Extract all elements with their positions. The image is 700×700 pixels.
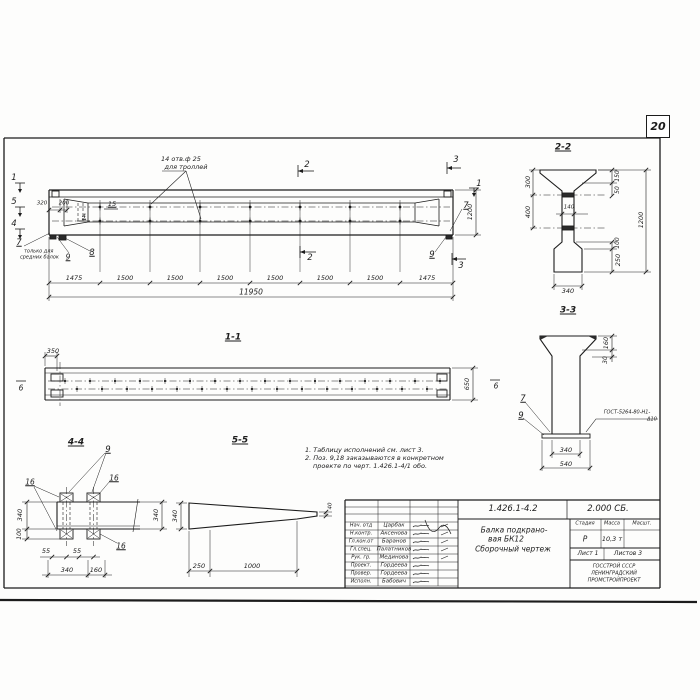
main-view-dim-320: 320 xyxy=(37,201,48,207)
section-2-2-dim-150: 150 xyxy=(615,170,621,181)
title-block-rows-7-role: Исполн. xyxy=(351,580,372,585)
main-view-mark-1: 1 xyxy=(476,180,481,189)
title-block-sheets-info: Листов 3 xyxy=(614,551,642,557)
notes-line1: 1. Таблицу исполнений см. лист 3. xyxy=(305,447,424,454)
main-view-pos-7: 7 xyxy=(16,239,21,248)
main-view-dims-bottom-5: 1500 xyxy=(317,275,334,282)
main-view-dims-bottom-0: 1475 xyxy=(66,275,83,282)
section-3-3-pos-9: 9 xyxy=(518,412,523,421)
title-block-rows-1-name: Аксенова xyxy=(380,531,407,537)
main-view-pos-9: 9 xyxy=(429,251,434,260)
section-4-4-pos-16: 16 xyxy=(109,474,119,482)
annotation-layer: 14 отв.ф 25для троллей154122333202001547… xyxy=(0,0,700,700)
section-2-2-dim-1200: 1200 xyxy=(638,212,645,229)
title-block-rows-2-name: Баранов xyxy=(382,539,406,545)
section-1-1-dim-650: 650 xyxy=(464,378,471,390)
title-block-org-line1: ГОССТРОЙ СССР xyxy=(593,565,636,570)
section-2-2-dim-100: 100 xyxy=(615,237,621,248)
title-block-title-line3: Сборочный чертеж xyxy=(475,545,551,553)
title-block-mass-value: 10,3 т xyxy=(602,536,622,543)
section-2-2-title: 2-2 xyxy=(555,144,571,153)
notes-line3: проекте по черт. 1.426.1-4/1 обо. xyxy=(313,463,427,470)
section-2-2-dim-300: 300 xyxy=(525,176,532,188)
section-2-2-dim-400: 400 xyxy=(525,206,532,218)
title-block-stage-value: Р xyxy=(583,535,588,543)
main-view-mark-3: 3 xyxy=(453,156,458,165)
section-4-4-pos-16: 16 xyxy=(116,542,126,550)
section-4-4-pos-9: 9 xyxy=(105,446,110,455)
section-4-4-dim-100: 100 xyxy=(17,528,23,539)
main-view-callout-line2: для троллей xyxy=(164,164,207,171)
section-5-5-title: 5-5 xyxy=(232,437,248,446)
section-3-3-dim-340: 340 xyxy=(560,447,572,454)
title-block-rows-1-role: Н.контр. xyxy=(350,532,372,537)
section-4-4-pos-16: 16 xyxy=(25,478,35,486)
section-1-1-dim-350: 350 xyxy=(47,348,59,355)
section-1-1-mark-6: 6 xyxy=(494,382,499,390)
section-3-3-dim-30: 30 xyxy=(603,356,609,364)
main-view-callout-line1: 14 отв.ф 25 xyxy=(161,156,201,163)
section-4-4-title: 4-4 xyxy=(68,439,84,448)
title-block-rows-6-name: Гордеева xyxy=(380,571,407,577)
drawing-sheet: 14 отв.ф 25для троллей154122333202001547… xyxy=(0,0,700,700)
title-block-rows-3-role: Гл.спец. xyxy=(350,548,372,553)
title-block-rows-4-name: Мединова xyxy=(379,555,408,561)
sheet-number-box: 20 xyxy=(646,115,670,138)
main-view-dim-height: 1200 xyxy=(467,204,474,221)
main-view-mark-2: 2 xyxy=(307,254,312,263)
title-block-doc-number: 1.426.1-4.2 xyxy=(488,505,537,514)
section-5-5-dim-1000: 1000 xyxy=(244,563,261,570)
title-block-rows-2-role: Гл.кон.от xyxy=(349,540,373,545)
section-4-4-dim-55: 55 xyxy=(73,548,81,555)
title-block-scale-header: Масшт. xyxy=(632,522,651,527)
title-block-rows-0-name: Царбак xyxy=(383,523,404,529)
main-view-mark-5: 5 xyxy=(11,198,16,207)
title-block-rows-5-role: Проект. xyxy=(351,564,372,569)
title-block-sheet-info: Лист 1 xyxy=(578,551,599,557)
section-3-3-pos-7: 7 xyxy=(520,395,525,404)
title-block-rows-4-role: Рук. гр. xyxy=(351,556,371,561)
main-view-mark-4b: 4 xyxy=(82,213,86,220)
title-block-rows-0-role: Нач. отд xyxy=(350,524,372,529)
title-block-org-line2: ЛЕНИНГРАДСКИЙ xyxy=(591,572,637,577)
section-5-5-dim-250: 250 xyxy=(193,563,205,570)
main-view-mark-1: 1 xyxy=(11,174,16,183)
section-5-5-dim-340: 340 xyxy=(172,510,179,522)
section-3-3-title: 3-3 xyxy=(560,307,576,316)
title-block-stage-header: Стадия xyxy=(575,522,594,527)
title-block-mass-header: Масса xyxy=(604,522,620,527)
main-view-dims-bottom-7: 1475 xyxy=(419,275,436,282)
section-2-2-dim-250: 250 xyxy=(615,254,622,266)
title-block-doc-code: 2.000 СБ. xyxy=(587,505,629,514)
main-view-note-line2: средних балок xyxy=(20,256,59,261)
sheet-number: 20 xyxy=(650,120,665,133)
section-4-4-dim-55: 55 xyxy=(42,548,50,555)
main-view-dims-bottom-6: 1500 xyxy=(367,275,384,282)
main-view-dim-total: 11950 xyxy=(239,288,263,296)
main-view-dims-bottom-2: 1500 xyxy=(167,275,184,282)
main-view-pos-15: 15 xyxy=(108,201,116,208)
section-3-3-weld-line2: Δ10 xyxy=(647,418,657,423)
main-view-mark-3: 3 xyxy=(458,262,463,271)
title-block-rows-5-name: Гордеева xyxy=(380,563,407,569)
title-block-rows-7-name: Бабович xyxy=(382,579,406,585)
main-view-mark-4: 4 xyxy=(11,220,16,229)
main-view-dim-200: 200 xyxy=(59,201,70,207)
title-block-title-line2: вая БК12 xyxy=(488,535,524,543)
section-4-4-dim-340-left: 340 xyxy=(17,509,24,521)
title-block-rows-6-role: Провер. xyxy=(351,572,372,577)
section-1-1-mark-6: 6 xyxy=(19,384,24,392)
section-2-2-dim-140: 140 xyxy=(564,205,575,211)
section-1-1-title: 1-1 xyxy=(225,334,241,343)
main-view-dims-bottom-1: 1500 xyxy=(117,275,134,282)
section-2-2-dim-340: 340 xyxy=(562,288,574,295)
main-view-pos-9: 9 xyxy=(66,253,71,261)
section-4-4-dim-340-right: 340 xyxy=(153,509,160,521)
section-4-4-dim-340-bottom: 340 xyxy=(61,567,73,574)
title-block-title-line1: Балка подкрано- xyxy=(481,526,548,534)
section-3-3-weld-line1: ГОСТ-5264-80-Н1- xyxy=(604,411,651,416)
main-view-dims-bottom-4: 1500 xyxy=(267,275,284,282)
main-view-pos-8: 8 xyxy=(89,249,94,258)
notes-line2: 2. Поз. 9,18 заказываются в конкретном xyxy=(305,455,444,462)
section-5-5-dim-40: 40 xyxy=(328,503,334,510)
section-3-3-dim-540: 540 xyxy=(560,461,572,468)
title-block-org-line3: ПРОМСТРОЙПРОЕКТ xyxy=(588,579,641,584)
section-4-4-dim-160: 160 xyxy=(90,567,102,574)
section-3-3-dim-160: 160 xyxy=(603,337,610,349)
section-2-2-dim-50: 50 xyxy=(615,186,621,194)
main-view-dims-bottom-3: 1500 xyxy=(217,275,234,282)
main-view-mark-2: 2 xyxy=(304,161,309,170)
title-block-rows-3-name: Палатников xyxy=(377,547,412,553)
